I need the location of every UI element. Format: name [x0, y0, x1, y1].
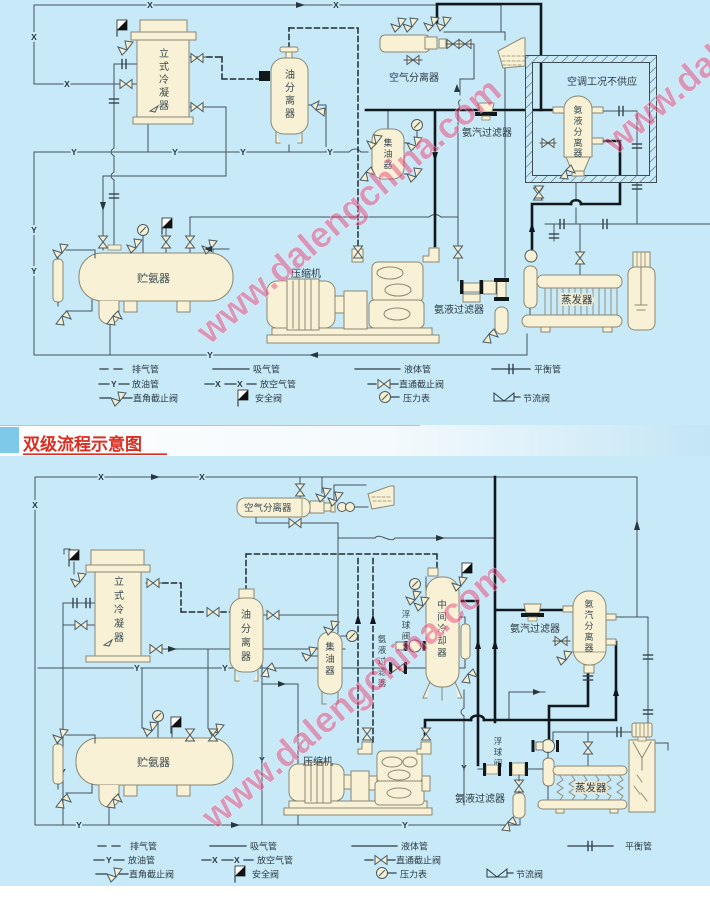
svg-text:器: 器: [285, 108, 295, 120]
svg-text:X: X: [199, 472, 205, 482]
svg-text:器: 器: [437, 648, 447, 659]
svg-text:Y: Y: [240, 147, 246, 157]
svg-text:贮氨器: 贮氨器: [137, 272, 170, 285]
svg-text:Y: Y: [31, 225, 37, 235]
svg-text:吸气管: 吸气管: [250, 841, 277, 852]
svg-text:吸气管: 吸气管: [253, 364, 280, 375]
svg-text:油: 油: [325, 653, 335, 665]
svg-text:放空气管: 放空气管: [257, 855, 293, 866]
svg-text:浮: 浮: [402, 609, 411, 619]
svg-text:直角截止阀: 直角截止阀: [133, 393, 178, 404]
svg-text:离: 离: [584, 631, 593, 642]
svg-text:贮氨器: 贮氨器: [137, 756, 170, 769]
svg-text:器: 器: [573, 148, 582, 158]
svg-text:空气分离器: 空气分离器: [389, 71, 439, 84]
svg-text:式: 式: [159, 60, 169, 73]
svg-text:球: 球: [494, 747, 503, 757]
svg-text:器: 器: [325, 666, 335, 677]
svg-text:安全阀: 安全阀: [255, 393, 282, 404]
svg-text:节流阀: 节流阀: [516, 869, 543, 880]
svg-text:压力表: 压力表: [403, 393, 430, 404]
svg-text:安全阀: 安全阀: [252, 869, 279, 880]
svg-text:Y: Y: [207, 350, 213, 360]
svg-text:液体管: 液体管: [404, 364, 431, 375]
svg-text:离: 离: [285, 94, 295, 107]
svg-text:排气管: 排气管: [132, 364, 159, 375]
svg-text:压力表: 压力表: [400, 869, 427, 880]
svg-text:氨: 氨: [573, 104, 582, 115]
svg-text:氨液过滤器: 氨液过滤器: [434, 303, 484, 316]
svg-text:Y: Y: [111, 379, 117, 389]
svg-text:Y: Y: [31, 266, 37, 276]
svg-text:X: X: [234, 855, 240, 865]
svg-text:油: 油: [241, 608, 251, 621]
svg-text:分: 分: [241, 623, 251, 635]
svg-text:Y: Y: [222, 663, 228, 673]
svg-text:液: 液: [573, 115, 582, 126]
svg-text:X: X: [98, 472, 104, 482]
svg-text:直通截止阀: 直通截止阀: [396, 855, 441, 866]
svg-text:Y: Y: [402, 820, 408, 830]
svg-text:放油管: 放油管: [128, 855, 155, 866]
svg-text:空调工况不供应: 空调工况不供应: [567, 75, 637, 88]
svg-text:冷: 冷: [159, 73, 169, 86]
svg-text:氨: 氨: [584, 598, 593, 609]
svg-text:立: 立: [159, 47, 169, 60]
svg-text:Y: Y: [134, 663, 140, 673]
svg-text:双级流程示意图: 双级流程示意图: [23, 434, 142, 454]
svg-text:排气管: 排气管: [130, 841, 157, 852]
svg-text:器: 器: [241, 651, 251, 663]
svg-text:X: X: [212, 855, 218, 865]
svg-text:Y: Y: [327, 147, 333, 157]
svg-text:节流阀: 节流阀: [523, 393, 550, 404]
svg-text:Y: Y: [71, 147, 77, 157]
svg-text:Y: Y: [106, 855, 112, 865]
svg-text:油: 油: [285, 68, 295, 81]
svg-text:器: 器: [159, 100, 169, 112]
svg-text:直角截止阀: 直角截止阀: [129, 869, 174, 880]
svg-text:X: X: [237, 379, 243, 389]
svg-text:汽: 汽: [584, 609, 593, 620]
svg-text:Y: Y: [76, 820, 82, 830]
svg-text:凝: 凝: [159, 87, 169, 99]
svg-text:放空气管: 放空气管: [260, 379, 296, 390]
svg-text:放油管: 放油管: [132, 379, 159, 390]
svg-text:蒸发器: 蒸发器: [561, 293, 593, 306]
svg-text:器: 器: [584, 643, 593, 653]
svg-text:器: 器: [114, 632, 124, 644]
svg-text:氨汽过滤器: 氨汽过滤器: [510, 622, 560, 635]
svg-text:凝: 凝: [114, 618, 124, 630]
svg-text:X: X: [31, 32, 37, 42]
svg-text:离: 离: [241, 636, 251, 649]
svg-text:X: X: [333, 0, 339, 10]
svg-text:浮: 浮: [494, 736, 503, 746]
svg-text:氨液过滤器: 氨液过滤器: [455, 792, 505, 805]
svg-text:X: X: [147, 0, 153, 10]
svg-text:Y: Y: [172, 147, 178, 157]
svg-text:X: X: [32, 500, 38, 510]
svg-text:液体管: 液体管: [401, 841, 428, 852]
svg-text:分: 分: [285, 82, 295, 94]
svg-text:平衡管: 平衡管: [534, 364, 561, 375]
svg-text:分: 分: [573, 127, 582, 137]
svg-text:平衡管: 平衡管: [625, 841, 652, 852]
svg-text:离: 离: [573, 137, 582, 148]
svg-text:集: 集: [325, 641, 335, 653]
svg-text:空气分离器: 空气分离器: [244, 502, 292, 514]
svg-text:蒸发器: 蒸发器: [575, 781, 607, 794]
svg-text:分: 分: [584, 621, 593, 631]
svg-text:立: 立: [114, 575, 124, 588]
svg-text:直通截止阀: 直通截止阀: [399, 379, 444, 390]
svg-text:冷: 冷: [114, 603, 124, 616]
svg-text:X: X: [64, 79, 70, 89]
svg-text:X: X: [215, 379, 221, 389]
svg-text:式: 式: [114, 589, 124, 602]
